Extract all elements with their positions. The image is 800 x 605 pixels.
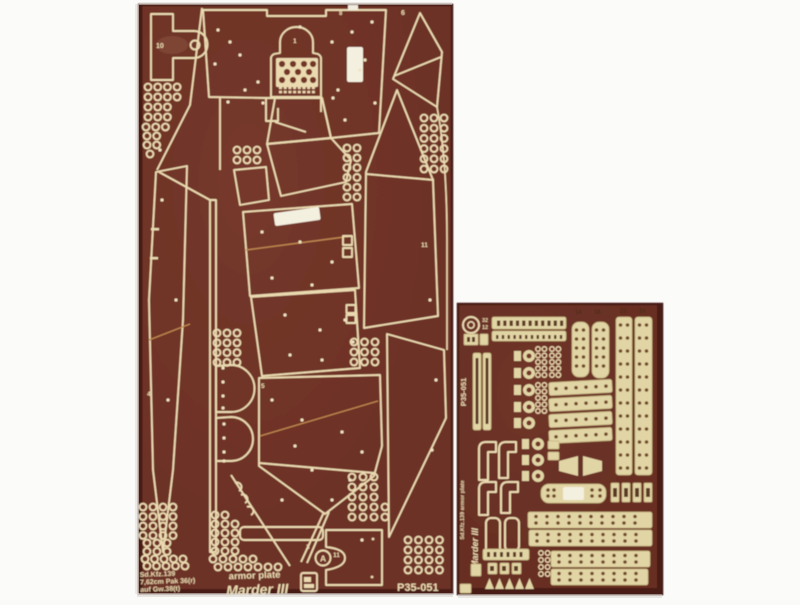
svg-text:Sd.Kfz.139 armor plate: Sd.Kfz.139 armor plate [460, 480, 466, 539]
svg-text:6: 6 [401, 10, 405, 17]
svg-text:auf Gw.38(t): auf Gw.38(t) [140, 586, 180, 594]
svg-text:10: 10 [156, 43, 164, 50]
svg-text:32: 32 [482, 318, 488, 324]
svg-text:16: 16 [594, 310, 601, 316]
svg-text:24: 24 [639, 309, 646, 315]
svg-text:3: 3 [306, 544, 310, 551]
svg-text:11: 11 [333, 552, 340, 559]
svg-text:4: 4 [147, 391, 151, 398]
svg-text:23: 23 [620, 309, 627, 315]
svg-text:14: 14 [575, 310, 582, 316]
svg-text:P35-051: P35-051 [459, 378, 468, 406]
svg-text:11: 11 [421, 242, 428, 249]
svg-text:Marder III: Marder III [470, 527, 480, 568]
svg-text:5: 5 [261, 383, 265, 390]
svg-text:A: A [320, 554, 326, 564]
svg-text:P35-051: P35-051 [397, 582, 439, 594]
svg-text:1: 1 [293, 38, 297, 45]
svg-text:12: 12 [482, 325, 488, 331]
